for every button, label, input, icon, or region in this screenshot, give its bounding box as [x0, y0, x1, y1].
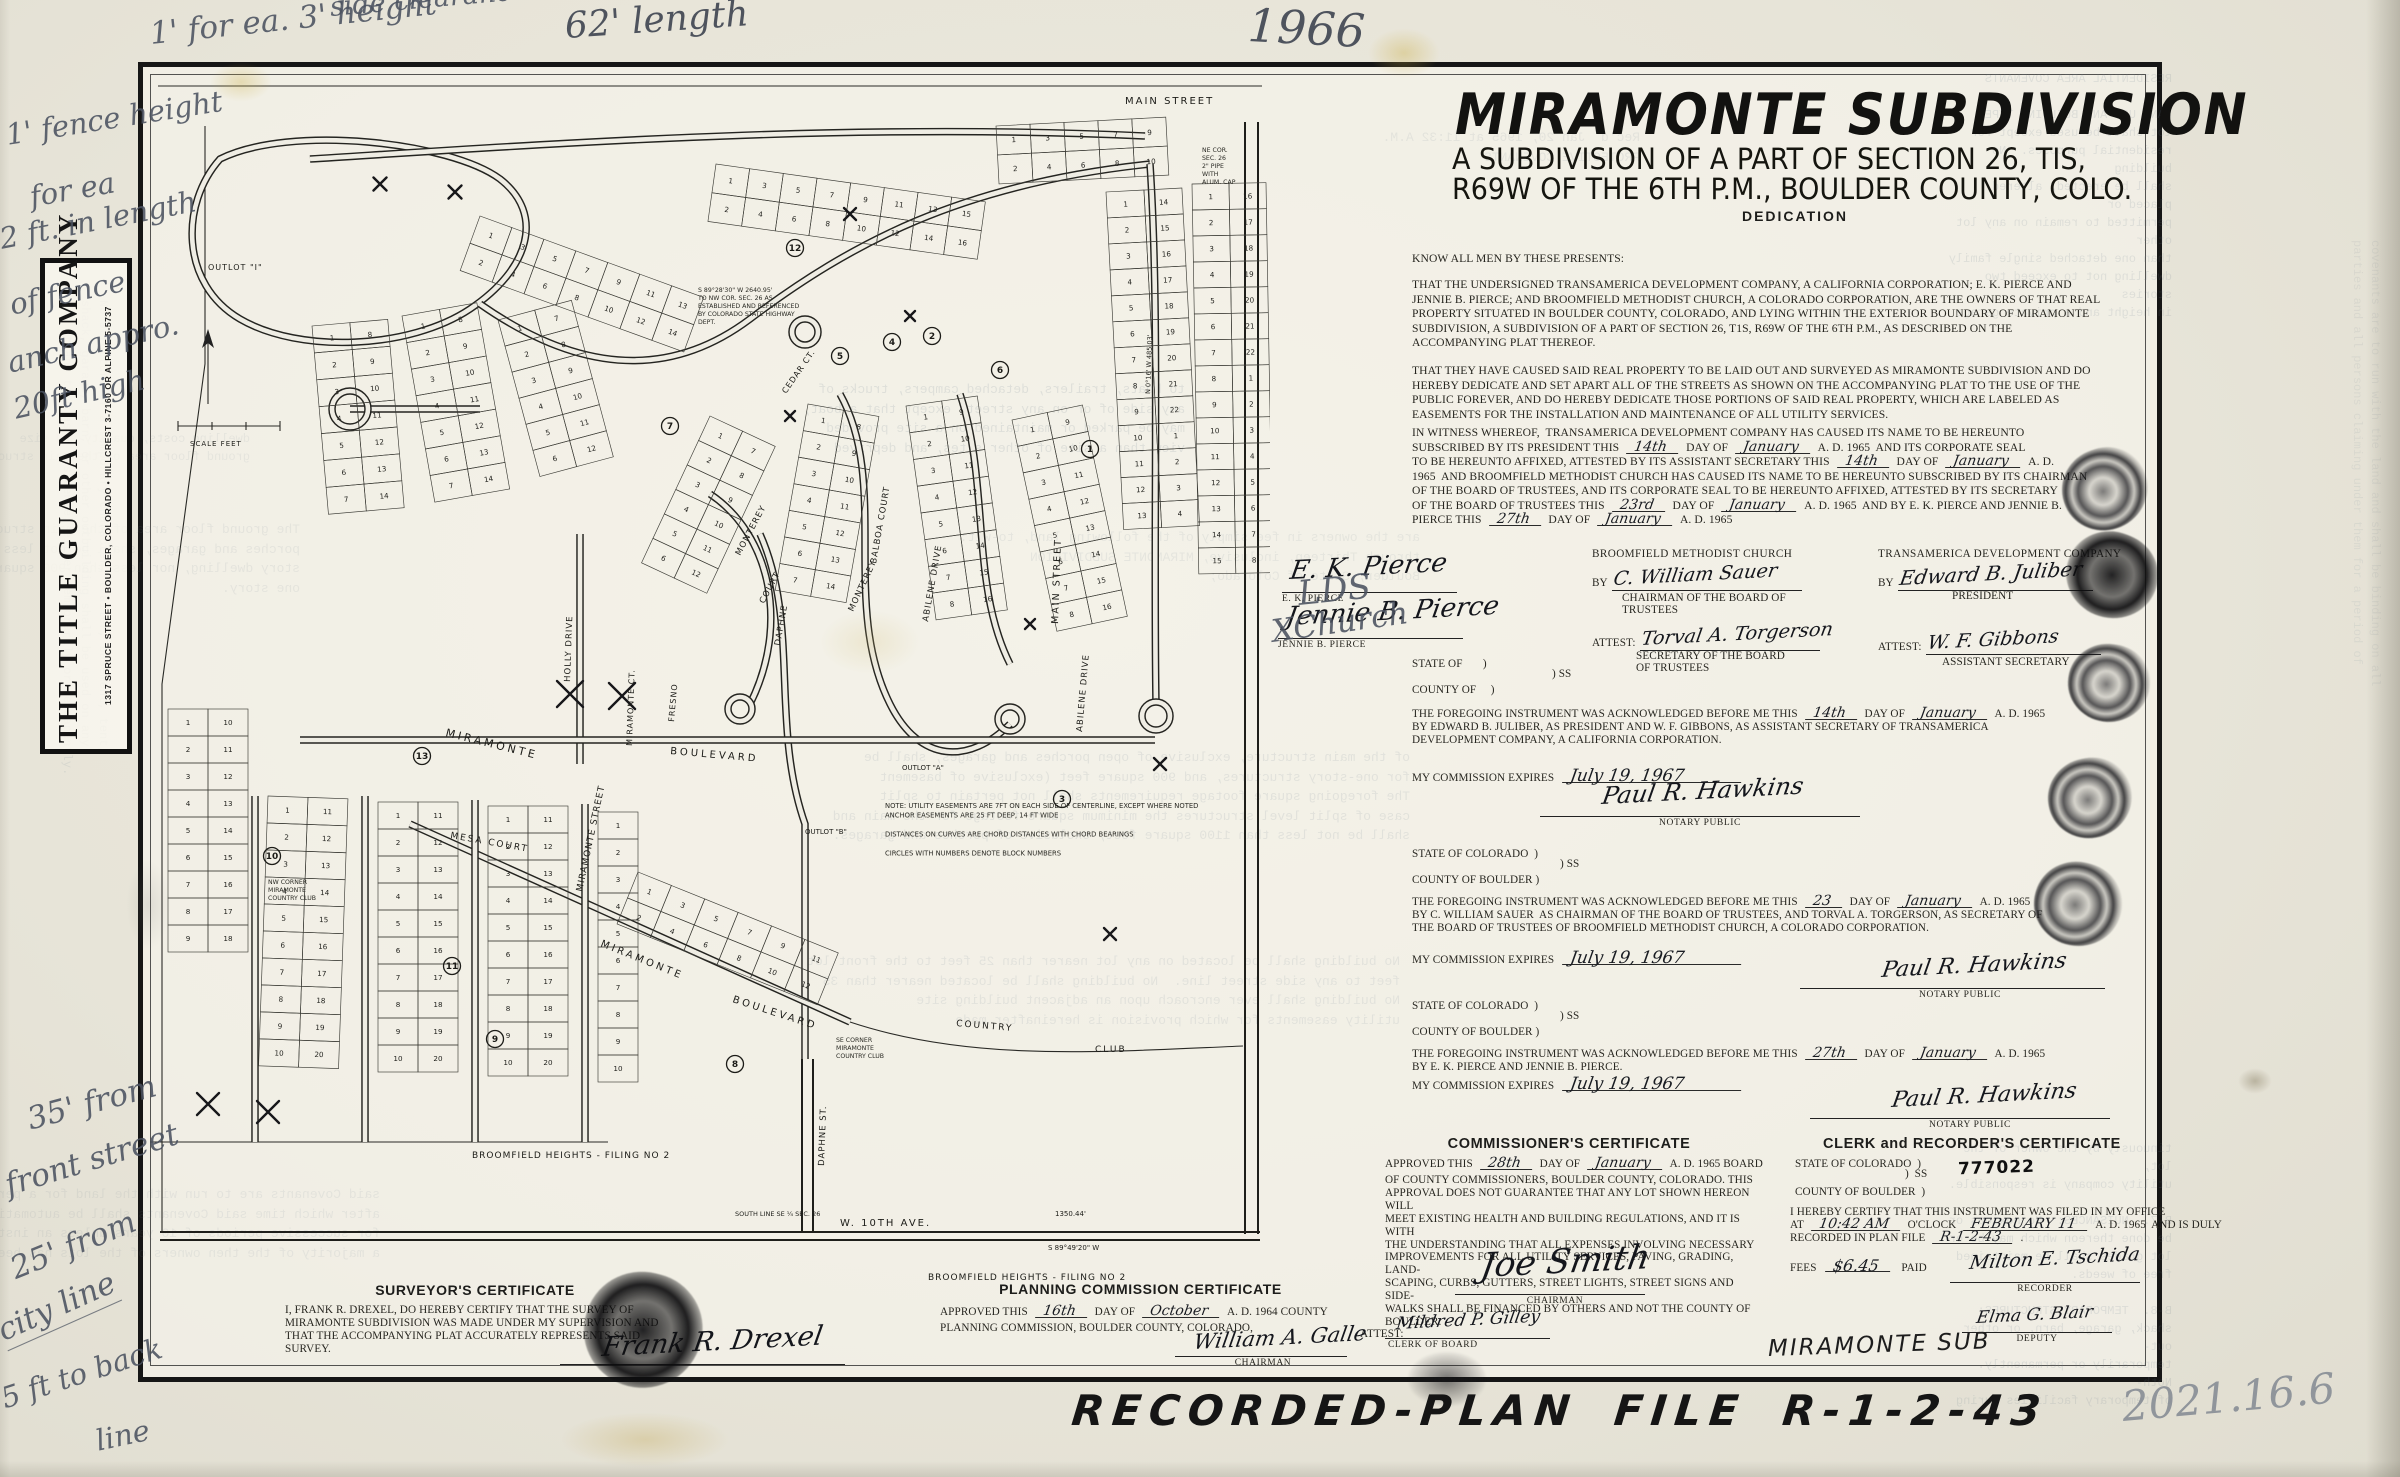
notary1-ss: ) SS: [1552, 668, 1571, 681]
lot-block: 123456789101112131415161718: [168, 709, 248, 952]
lot-number: 1: [728, 176, 734, 186]
lot-number: 16: [1243, 192, 1253, 201]
lot-number: 7: [344, 495, 349, 504]
lot-number: 12: [1079, 496, 1090, 507]
text-segment: A. D. 1965 AND IS DULY: [2095, 1219, 2224, 1231]
scanned-plat-document: to boats, trailers, detached campers, tr…: [0, 0, 2400, 1477]
lot-number: 9: [462, 341, 468, 351]
lot-number: 14: [223, 826, 233, 835]
cr-state: STATE OF COLORADO ): [1795, 1158, 1921, 1171]
street-label: OUTLOT "A": [902, 764, 944, 772]
lot-number: 11: [810, 953, 822, 965]
street-label: S 89°49'20" W: [1048, 1244, 1099, 1252]
lot-number: 2: [1124, 225, 1129, 234]
lot-number: 13: [928, 204, 938, 214]
lot-number: 6: [1081, 160, 1086, 169]
lot-number: 6: [702, 940, 710, 950]
lot-number: 1: [1029, 425, 1035, 435]
text-line: PIERCE THIS 27thDAY OF JanuaryA. D. 1965: [1412, 513, 2132, 528]
lot-number: 2: [816, 442, 822, 452]
lot-number: 12: [635, 315, 647, 327]
lot-number: 6: [1130, 329, 1135, 338]
lot-block: 1234567891011121314: [460, 216, 703, 352]
street-label: BOULEVARD: [670, 746, 759, 765]
dedication-opening: KNOW ALL MEN BY THESE PRESENTS:: [1412, 252, 2107, 267]
lot-number: 2: [396, 838, 401, 847]
torgerson-title-2: OF TRUSTEES: [1636, 662, 1709, 675]
x-mark: [449, 186, 462, 199]
lot-number: 6: [1251, 504, 1256, 513]
text-segment: DAY OF: [1686, 441, 1731, 454]
lot-number: 3: [429, 374, 435, 384]
x-mark: [1025, 619, 1035, 629]
handwriting-length-note: 62' length: [564, 0, 750, 47]
lot-number: 6: [660, 553, 668, 563]
lot-number: 22: [1170, 405, 1180, 414]
cr-body: I HEREBY CERTIFY THAT THIS INSTRUMENT WA…: [1790, 1206, 2170, 1245]
notary1-state: STATE OF ): [1412, 658, 1487, 671]
lot-number: 4: [934, 492, 940, 502]
x-mark: [257, 1101, 279, 1123]
lot-number: 5: [671, 529, 679, 539]
lot-number: 2: [927, 439, 933, 449]
lot-number: 3: [616, 875, 621, 884]
lot-number: 14: [320, 888, 330, 897]
notary3-commission: MY COMMISSION EXPIRES July 19, 1967: [1412, 1076, 1749, 1094]
lot-number: 5: [544, 428, 551, 438]
lot-number: 4: [337, 414, 343, 423]
lot-number: 8: [278, 995, 283, 1004]
text-segment: APPROVED THIS: [1385, 1158, 1476, 1170]
lot-number: 14: [543, 896, 553, 905]
handwriting-setback-3: 25' from: [5, 1204, 141, 1287]
lot-number: 10: [572, 391, 584, 402]
lot-block: 1234567891011121314: [312, 319, 404, 514]
sauer-title-1: CHAIRMAN OF THE BOARD OF: [1622, 592, 1786, 605]
lot-number: 10: [1068, 443, 1079, 454]
text-segment: 1965 AND BROOMFIELD METHODIST CHURCH HAS…: [1412, 470, 2090, 483]
lot-number: 17: [1244, 218, 1253, 227]
text-segment: A. D. 1965 AND ITS CORPORATE SEAL: [1818, 441, 2028, 454]
lot-number: 5: [616, 929, 621, 938]
lot-number: 8: [506, 1004, 511, 1013]
handwritten-insert: 23: [1805, 896, 1844, 908]
lot-number: 7: [396, 973, 401, 982]
handwritten-insert: January: [1722, 500, 1799, 512]
lot-number: 10: [856, 223, 867, 233]
street-label: CLUB: [1095, 1045, 1127, 1055]
lot-number: 15: [979, 567, 989, 577]
lot-number: 13: [321, 861, 330, 870]
commission-date: July 19, 1967: [1562, 1079, 1743, 1091]
handwritten-insert: 14th: [1837, 456, 1891, 468]
dedication-paragraph-2: THAT THEY HAVE CAUSED SAID REAL PROPERTY…: [1412, 364, 2107, 422]
church-header: BROOMFIELD METHODIST CHURCH: [1592, 548, 1792, 561]
lot-number: 2: [616, 848, 621, 857]
lot-number: 17: [1163, 275, 1173, 284]
lot-number: 16: [543, 950, 553, 959]
lot-number: 14: [924, 233, 935, 243]
text-segment: THE FOREGOING INSTRUMENT WAS ACKNOWLEDGE…: [1412, 896, 1801, 908]
main-street-line: [1245, 122, 1258, 1234]
signature-line: C. William Sauer: [1612, 568, 1802, 591]
lot-number: 11: [645, 288, 657, 300]
notary2-county: COUNTY OF BOULDER ): [1412, 874, 1539, 887]
lot-number: 8: [856, 422, 862, 432]
lot-block: 123456789101112: [642, 416, 776, 593]
signature-line: [1540, 816, 1860, 817]
lot-number: 1: [329, 333, 334, 342]
lot-number: 13: [377, 464, 387, 474]
scan-edge-shadow: [0, 1461, 2400, 1477]
notary3-ss: ) SS: [1560, 1010, 1579, 1023]
lot-number: 6: [506, 950, 511, 959]
lot-number: 15: [961, 209, 971, 219]
street-label: DAPHNE: [773, 604, 790, 647]
lot-number: 6: [443, 454, 449, 464]
lot-number: 1: [1173, 431, 1178, 440]
daphne-st-line: [802, 1059, 813, 1232]
lot-number: 3: [1209, 244, 1214, 253]
street-label: OUTLOT "I": [208, 263, 263, 272]
signature-line: [1950, 1282, 2140, 1283]
street-label: W. 10TH AVE.: [840, 1218, 931, 1229]
lot-number: 16: [1162, 249, 1172, 258]
handwriting-side-clearance-2: 1' for ea. 3' height: [148, 0, 438, 52]
signature-line: [1175, 1356, 1347, 1357]
text-segment: THE FOREGOING INSTRUMENT WAS ACKNOWLEDGE…: [1412, 1048, 1801, 1060]
lot-number: 12: [835, 528, 846, 538]
subtitle-line-2: R69W OF THE 6TH P.M., BOULDER COUNTY, CO…: [1452, 172, 2132, 206]
lot-number: 3: [283, 860, 288, 869]
lot-number: 16: [318, 942, 328, 951]
lot-number: 15: [1160, 223, 1170, 232]
lot-number: 1: [396, 811, 401, 820]
lot-number: 8: [1252, 556, 1257, 565]
lot-number: 7: [186, 880, 191, 889]
text-line: OF COUNTY COMMISSIONERS, BOULDER COUNTY,…: [1385, 1174, 1765, 1187]
lot-number: 11: [433, 811, 442, 820]
lot-number: 10: [393, 1054, 403, 1063]
lot-number: 2: [284, 833, 289, 842]
lot-number: 20: [314, 1050, 324, 1059]
text-line: MEET EXISTING HEALTH AND BUILDING REGULA…: [1385, 1213, 1765, 1239]
company-attest-row: ATTEST: W. F. Gibbons: [1878, 632, 2101, 655]
lot-number: 1: [487, 231, 494, 241]
text-segment: A. D.: [2028, 455, 2057, 468]
lot-number: 2: [332, 360, 337, 369]
notary3-county: COUNTY OF BOULDER ): [1412, 1026, 1539, 1039]
lot-number: 7: [1131, 355, 1136, 364]
lot-number: 10: [1210, 426, 1220, 435]
lot-number: 21: [1245, 322, 1254, 331]
text-segment: AT: [1790, 1219, 1807, 1231]
text-segment: DAY OF: [1850, 896, 1893, 908]
text-line: DEVELOPMENT COMPANY, A CALIFORNIA CORPOR…: [1412, 734, 2132, 747]
dedication-paragraph-1: THAT THE UNDERSIGNED TRANSAMERICA DEVELO…: [1412, 278, 2107, 351]
commission-label: MY COMMISSION EXPIRES: [1412, 772, 1554, 784]
lot-number: 7: [1251, 530, 1256, 539]
lot-number: 13: [479, 447, 490, 457]
text-line: THE BOARD OF TRUSTEES OF BROOMFIELD METH…: [1412, 922, 2132, 935]
lot-number: 9: [726, 495, 734, 505]
lot-number: 18: [433, 1000, 443, 1009]
notary2-state: STATE OF COLORADO ): [1412, 848, 1538, 861]
planning-heading: PLANNING COMMISSION CERTIFICATE: [918, 1281, 1363, 1297]
cr-county: COUNTY OF BOULDER ): [1795, 1186, 1925, 1199]
street-label: BALBOA COURT: [869, 486, 892, 565]
handwritten-insert: January: [1946, 456, 2023, 468]
lot-number: 14: [1212, 530, 1222, 539]
clerk-recorder-heading: CLERK and RECORDER'S CERTIFICATE: [1788, 1136, 2156, 1152]
lot-number: 1: [616, 821, 621, 830]
lot-number: 14: [483, 474, 494, 485]
lot-number: 15: [433, 919, 442, 928]
signature-line: Torval A. Torgerson: [1640, 628, 1820, 651]
map-note: NE COR.SEC. 262" PIPEWITHALUM. CAP: [1202, 147, 1236, 186]
lot-number: 2: [705, 455, 713, 465]
lot-number: 4: [1127, 277, 1132, 286]
lot-number: 9: [186, 934, 191, 943]
street-label: SCALE FEET: [190, 440, 242, 448]
handwritten-insert: 27th: [1489, 514, 1543, 526]
text-segment: BY E. K. PIERCE AND JENNIE B. PIERCE.: [1412, 1061, 1625, 1073]
lot-number: 10: [603, 304, 615, 316]
lot-number: 14: [1159, 197, 1169, 206]
lot-number: 8: [1133, 381, 1138, 390]
fees-label: FEES: [1790, 1262, 1817, 1274]
lot-number: 14: [975, 540, 986, 550]
lot-number: 4: [682, 504, 690, 514]
notary2-title: NOTARY PUBLIC: [1900, 990, 2020, 1000]
lot-number: 9: [370, 357, 376, 366]
lot-number: 13: [1137, 511, 1147, 520]
lot-number: 1: [186, 718, 191, 727]
handwritten-insert: October: [1142, 1306, 1221, 1318]
lot-number: 13: [677, 300, 689, 312]
street-label: 1350.44': [1055, 1210, 1086, 1218]
lot-number: 19: [315, 1023, 325, 1032]
lot-number: 3: [1249, 426, 1254, 435]
handwritten-insert: 16th: [1035, 1306, 1089, 1318]
text-segment: A. D. 1965 AND BY E. K. PIERCE AND JENNI…: [1804, 499, 2065, 512]
recorder-label: RECORDER: [2000, 1284, 2090, 1294]
text-line: RECORDED IN PLAN FILE R-1-2-43.: [1790, 1232, 2170, 1245]
lot-number: 4: [396, 892, 401, 901]
lot-number: 18: [543, 1004, 553, 1013]
subtitle-line-1: A SUBDIVISION OF A PART OF SECTION 26, T…: [1452, 142, 2086, 176]
lot-number: 14: [379, 491, 389, 501]
lot-number: 6: [1211, 322, 1216, 331]
fees-amount: $6.45: [1825, 1260, 1892, 1272]
text-segment: APPROVED THIS: [940, 1306, 1031, 1318]
text-line: THE FOREGOING INSTRUMENT WAS ACKNOWLEDGE…: [1412, 708, 2132, 721]
block-number: 13: [416, 752, 429, 762]
lot-number: 7: [945, 573, 951, 583]
plat-map: 1234567891011121314123456789101112131415…: [150, 64, 1270, 1309]
lot-number: 6: [341, 468, 347, 477]
lot-number: 19: [1244, 270, 1254, 279]
lot-number: 2: [425, 348, 431, 358]
lot-number: 8: [1212, 374, 1217, 383]
lot-number: 6: [396, 946, 401, 955]
lot-number: 9: [616, 1037, 621, 1046]
text-segment: DAY OF: [1897, 455, 1942, 468]
text-segment: THE FOREGOING INSTRUMENT WAS ACKNOWLEDGE…: [1412, 708, 1801, 720]
block-number: 10: [266, 852, 279, 862]
street-label: MIRAMONTE CT.: [625, 669, 637, 746]
lot-number: 4: [1047, 162, 1052, 171]
lot-number: 14: [667, 327, 679, 339]
lot-number: 4: [537, 401, 544, 411]
lot-number: 10: [223, 718, 233, 727]
notary2-ss: ) SS: [1560, 858, 1579, 871]
lot-number: 13: [223, 799, 232, 808]
lot-number: 1: [516, 323, 523, 333]
lot-number: 7: [553, 313, 560, 323]
block-number: 5: [837, 352, 843, 362]
lot-number: 13: [971, 514, 981, 524]
lot-number: 16: [983, 594, 994, 604]
text-segment: A. D. 1965: [1680, 513, 1736, 526]
x-mark: [844, 208, 856, 220]
text-line: 1965 AND BROOMFIELD METHODIST CHURCH HAS…: [1412, 470, 2132, 485]
roads: [192, 132, 1156, 1142]
chairman-label: CHAIRMAN: [1500, 1296, 1610, 1306]
by-label: BY: [1878, 577, 1894, 589]
commission-label: MY COMMISSION EXPIRES: [1412, 954, 1554, 966]
lot-number: 19: [433, 1027, 443, 1036]
street-label: MAIN STREET: [1125, 96, 1214, 107]
lot-number: 16: [223, 880, 233, 889]
lot-number: 6: [616, 956, 621, 965]
witness-clause: IN WITNESS WHEREOF, TRANSAMERICA DEVELOP…: [1412, 426, 2132, 528]
text-segment: PIERCE THIS: [1412, 513, 1485, 526]
lot-number: 1: [820, 416, 826, 426]
text-line: BY C. WILLIAM SAUER AS CHAIRMAN OF THE B…: [1412, 909, 2132, 922]
handwritten-insert: 10:42 AM: [1811, 1219, 1902, 1231]
text-line: BY EDWARD B. JULIBER, AS PRESIDENT AND W…: [1412, 721, 2132, 734]
lot-number: 3: [1176, 483, 1181, 492]
lot-number: 11: [1211, 452, 1220, 461]
lot-number: 13: [433, 865, 442, 874]
lot-number: 17: [317, 969, 326, 978]
lot-number: 1: [646, 887, 654, 897]
lot-number: 8: [735, 953, 743, 963]
lot-number: 4: [668, 926, 676, 936]
lot-number: 8: [573, 293, 581, 303]
lot-number: 4: [616, 902, 621, 911]
lot-number: 7: [583, 265, 590, 275]
lot-number: 10: [767, 966, 779, 978]
clerk-of-board-label: CLERK OF BOARD: [1388, 1340, 1518, 1350]
lot-number: 7: [829, 190, 835, 200]
scale-bar: [178, 421, 280, 431]
lot-number: 13: [830, 554, 841, 564]
x-mark: [785, 411, 795, 421]
lot-number: 15: [223, 853, 232, 862]
lot-number: 14: [1090, 549, 1101, 560]
text-segment: OF THE BOARD OF TRUSTEES THIS: [1412, 499, 1608, 512]
lot-number: 8: [396, 1000, 401, 1009]
lot-number: 5: [339, 441, 344, 450]
lot-number: 17: [433, 973, 442, 982]
paper-stain: [2238, 1068, 2272, 1094]
lot-number: 11: [964, 460, 974, 470]
lot-number: 9: [278, 1022, 283, 1031]
block-number: 12: [789, 244, 802, 254]
lot-number: 1: [420, 321, 426, 331]
lot-number: 2: [635, 913, 643, 923]
street-label: HOLLY DRIVE: [563, 615, 575, 682]
lot-number: 11: [372, 410, 382, 420]
lot-number: 3: [679, 900, 687, 910]
lot-number: 20: [1167, 353, 1177, 362]
lot-number: 9: [863, 195, 869, 205]
lot-number: 11: [323, 807, 332, 816]
handwritten-insert: 28th: [1480, 1158, 1534, 1170]
by-label: BY: [1592, 577, 1608, 589]
lot-number: 1: [717, 431, 725, 441]
text-segment: RECORDED IN PLAN FILE: [1790, 1232, 1928, 1244]
lot-number: 10: [465, 367, 476, 378]
lot-number: 9: [1212, 400, 1217, 409]
map-note: SE CORNERMIRAMONTECOUNTRY CLUB: [836, 1037, 884, 1060]
lot-number: 2: [186, 745, 191, 754]
lot-number: 18: [316, 996, 326, 1005]
block-number: 4: [889, 338, 895, 348]
lot-number: 10: [960, 434, 971, 444]
commission-date: July 19, 1967: [1562, 953, 1743, 965]
x-mark: [197, 1093, 219, 1115]
lot-number: 9: [615, 277, 623, 287]
text-segment: A. D. 1965 BOARD: [1670, 1158, 1763, 1170]
lot-number: 16: [433, 946, 443, 955]
street-label: MAIN STREET: [1050, 538, 1064, 624]
planning-line1: APPROVED THIS 16thDAY OF OctoberA. D. 19…: [940, 1306, 1370, 1319]
lot-number: 4: [1177, 509, 1182, 518]
notary2-acknowledgment: THE FOREGOING INSTRUMENT WAS ACKNOWLEDGE…: [1412, 896, 2132, 935]
handwritten-insert: January: [1897, 896, 1974, 908]
block-number: 6: [997, 366, 1003, 376]
street-label: CEDAR CT.: [780, 348, 817, 395]
handwritten-insert: 14th: [1805, 708, 1859, 720]
signature-line: Edward B. Juliber: [1898, 566, 2093, 591]
lot-number: 2: [1175, 457, 1180, 466]
church-attest-row: ATTEST: Torval A. Torgerson: [1592, 628, 1820, 651]
map-note: NW CORNERMIRAMONTECOUNTRY CLUB: [268, 879, 316, 902]
lot-number: 1: [285, 806, 290, 815]
lot-number: 20: [1245, 296, 1255, 305]
lot-number: 3: [811, 469, 817, 479]
north-arrow: [202, 329, 214, 404]
lot-number: 8: [616, 1010, 621, 1019]
lot-number: 4: [186, 799, 191, 808]
lot-number: 11: [1073, 470, 1084, 481]
commission-label: MY COMMISSION EXPIRES: [1412, 1080, 1554, 1092]
lot-number: 1: [1123, 199, 1128, 208]
lot-number: 3: [762, 181, 768, 191]
lot-number: 10: [844, 475, 855, 486]
lot-number: 7: [1211, 348, 1216, 357]
lot-number: 6: [186, 853, 191, 862]
lot-number: 18: [1164, 301, 1174, 310]
lot-number: 5: [712, 914, 720, 924]
lot-number: 8: [825, 219, 831, 229]
lot-number: 7: [749, 446, 757, 456]
text-segment: A. D. 1965: [1994, 1048, 2048, 1060]
cr-fees-row: FEES $6.45 PAID: [1790, 1258, 1927, 1276]
